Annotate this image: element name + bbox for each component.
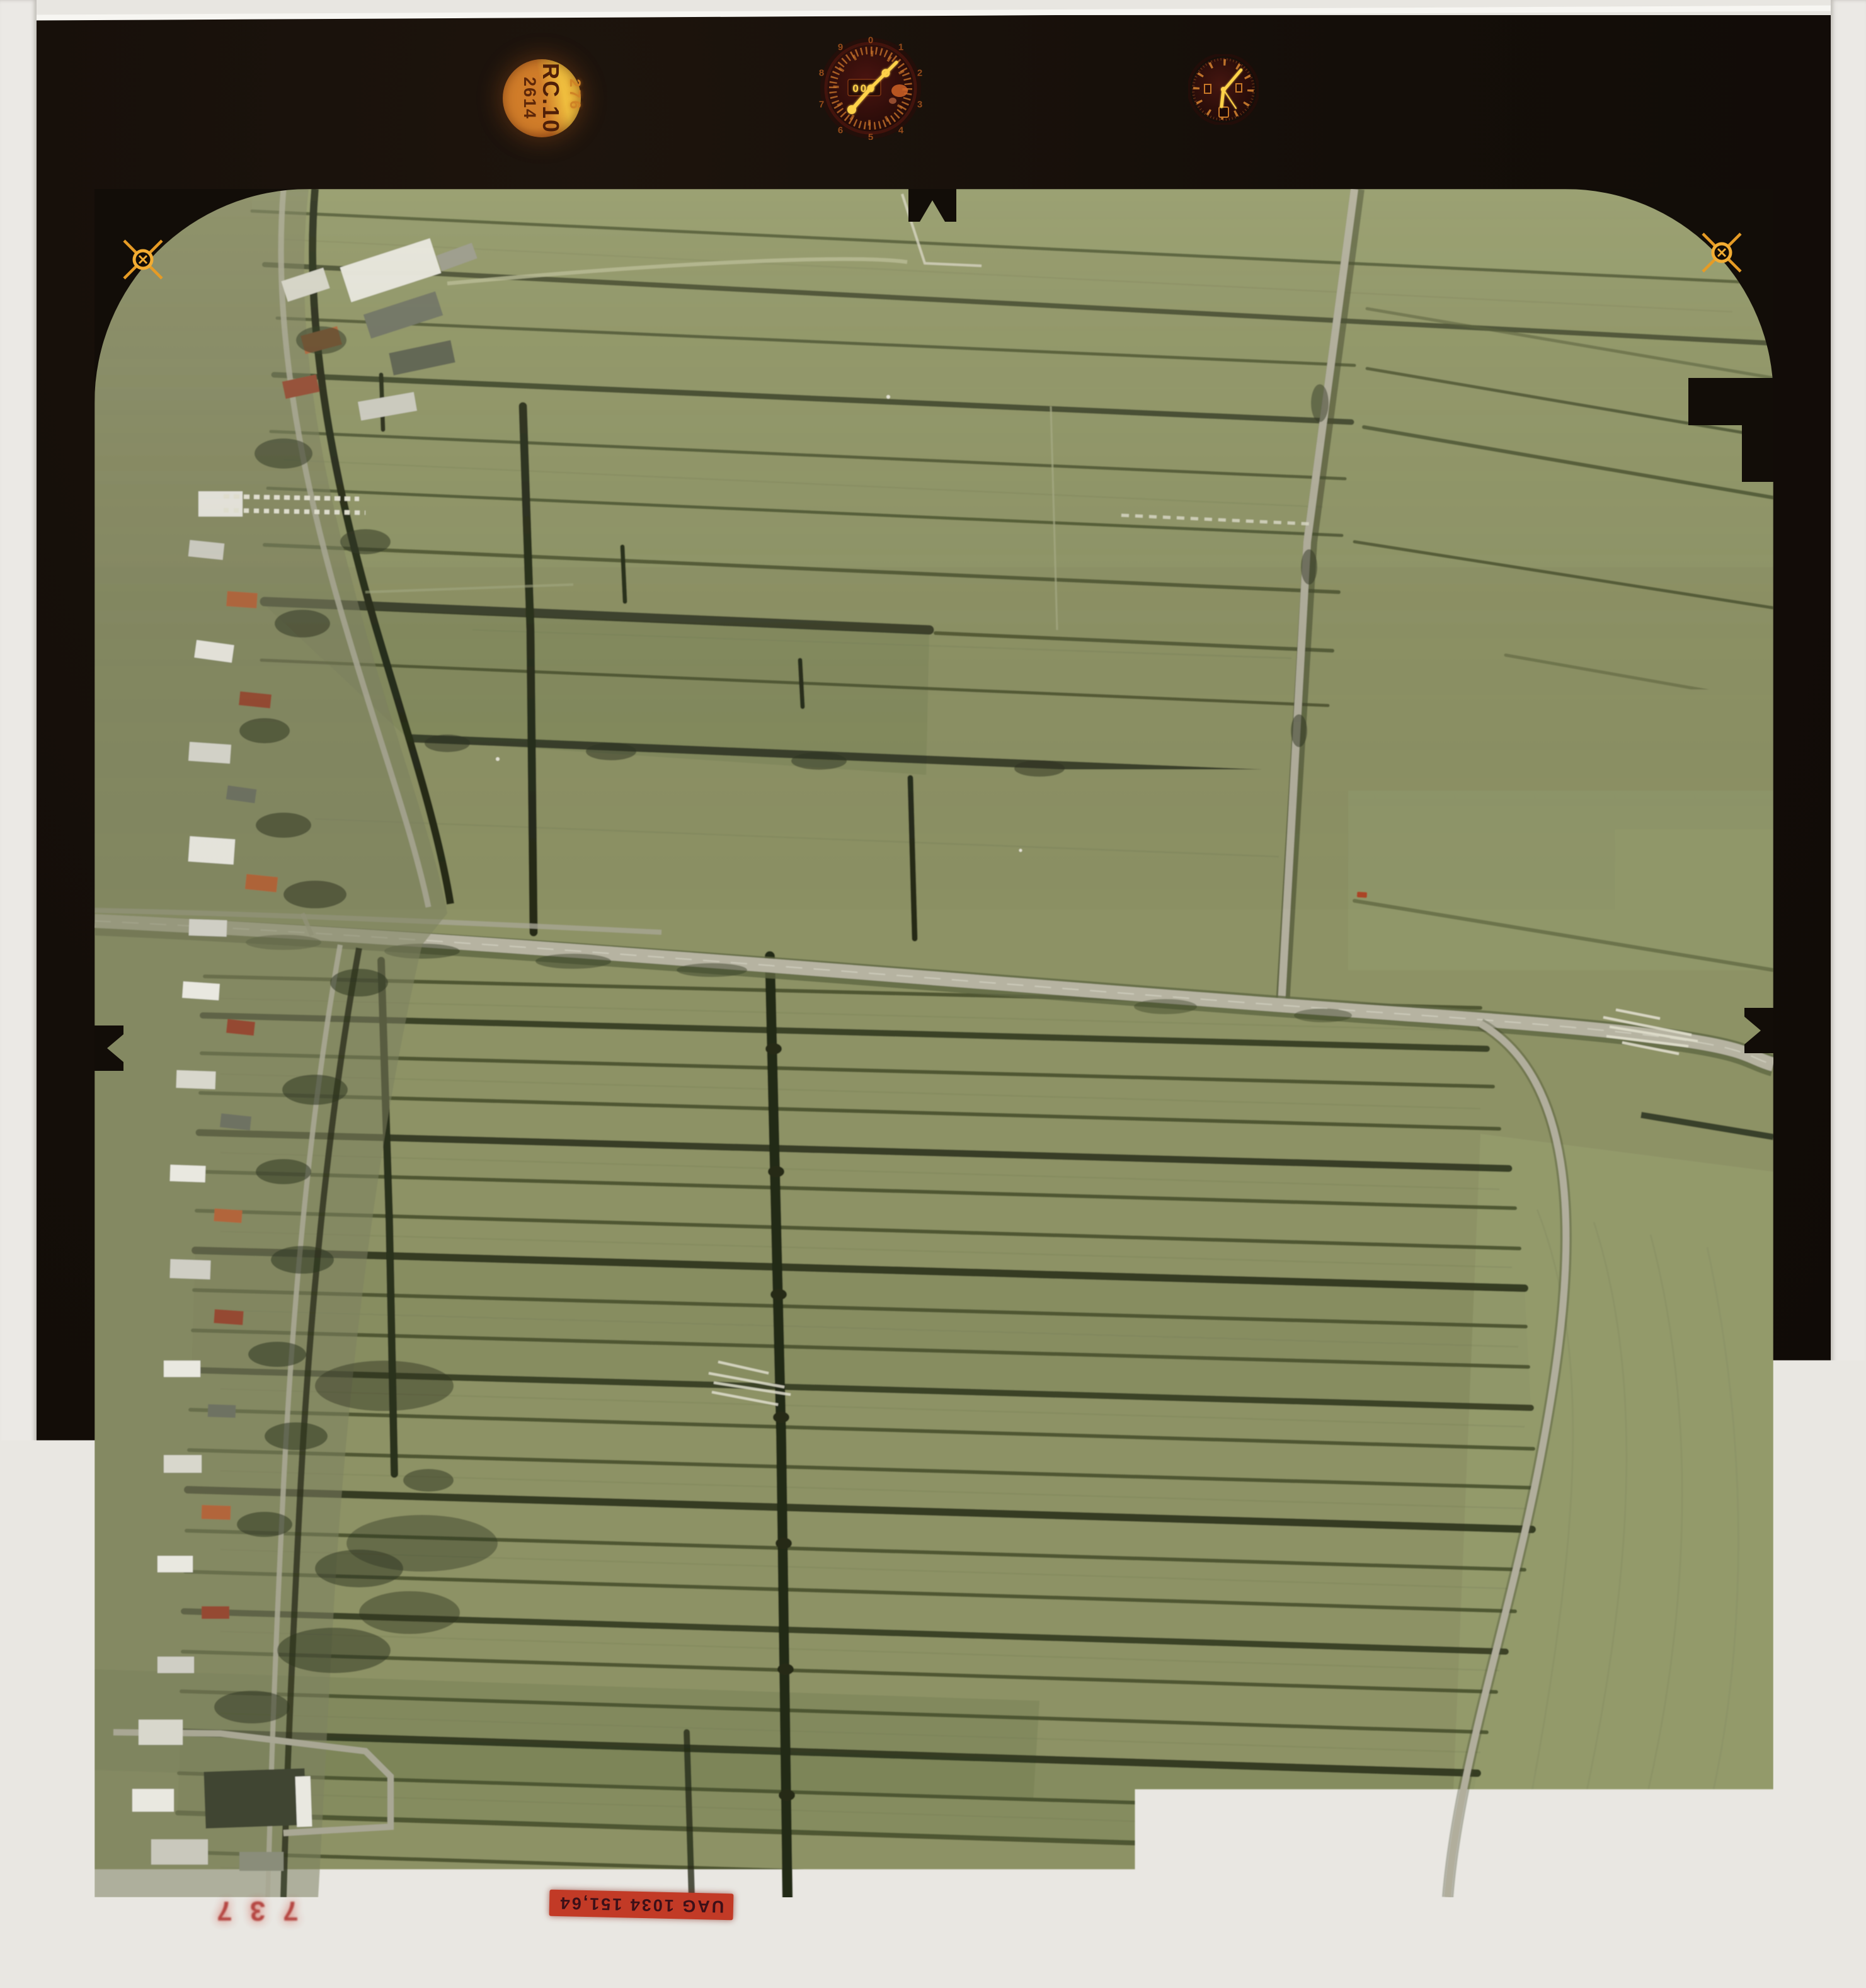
- polder-landscape: [94, 189, 1773, 1897]
- svg-text:1: 1: [898, 42, 903, 52]
- svg-text:8: 8: [819, 67, 824, 78]
- badge-serial: 2614: [521, 77, 539, 120]
- date-window: [1219, 107, 1228, 117]
- svg-text:7: 7: [819, 99, 824, 110]
- right-aperture: [1236, 84, 1242, 92]
- haze-overlay: [94, 189, 1773, 1897]
- photo-id-text: UAG 1034 151,64: [558, 1894, 724, 1917]
- dial-glow-patch: [891, 84, 908, 97]
- altimeter-dial: 0 1 2 3 4 5 6 7 8 9 000: [819, 37, 922, 140]
- photo-id-label: UAG 1034 151,64: [549, 1890, 734, 1921]
- badge-model: RC.10: [539, 63, 563, 134]
- svg-text:4: 4: [898, 125, 904, 135]
- left-aperture: [1205, 84, 1211, 93]
- clock-dial: [1188, 54, 1259, 125]
- frame-counter: 737: [176, 1888, 321, 1926]
- aerial-photo: [94, 189, 1773, 1897]
- camera-id-badge: RC.10 2614 276: [503, 55, 610, 163]
- svg-text:5: 5: [868, 132, 873, 140]
- film-scan: RC.10 2614 276 0 1 2 3 4 5 6 7 8: [0, 0, 1866, 1988]
- badge-aux-number: 276: [567, 76, 583, 114]
- scan-margin-right: [1831, 0, 1866, 1988]
- svg-text:9: 9: [838, 42, 843, 52]
- scan-margin-left: [0, 0, 37, 1988]
- dial-glow-patch-2: [889, 98, 896, 104]
- svg-text:6: 6: [838, 125, 843, 135]
- scan-margin-bottom: [0, 1955, 1866, 1988]
- svg-text:3: 3: [917, 99, 922, 110]
- svg-text:2: 2: [917, 67, 922, 78]
- svg-text:0: 0: [868, 37, 873, 45]
